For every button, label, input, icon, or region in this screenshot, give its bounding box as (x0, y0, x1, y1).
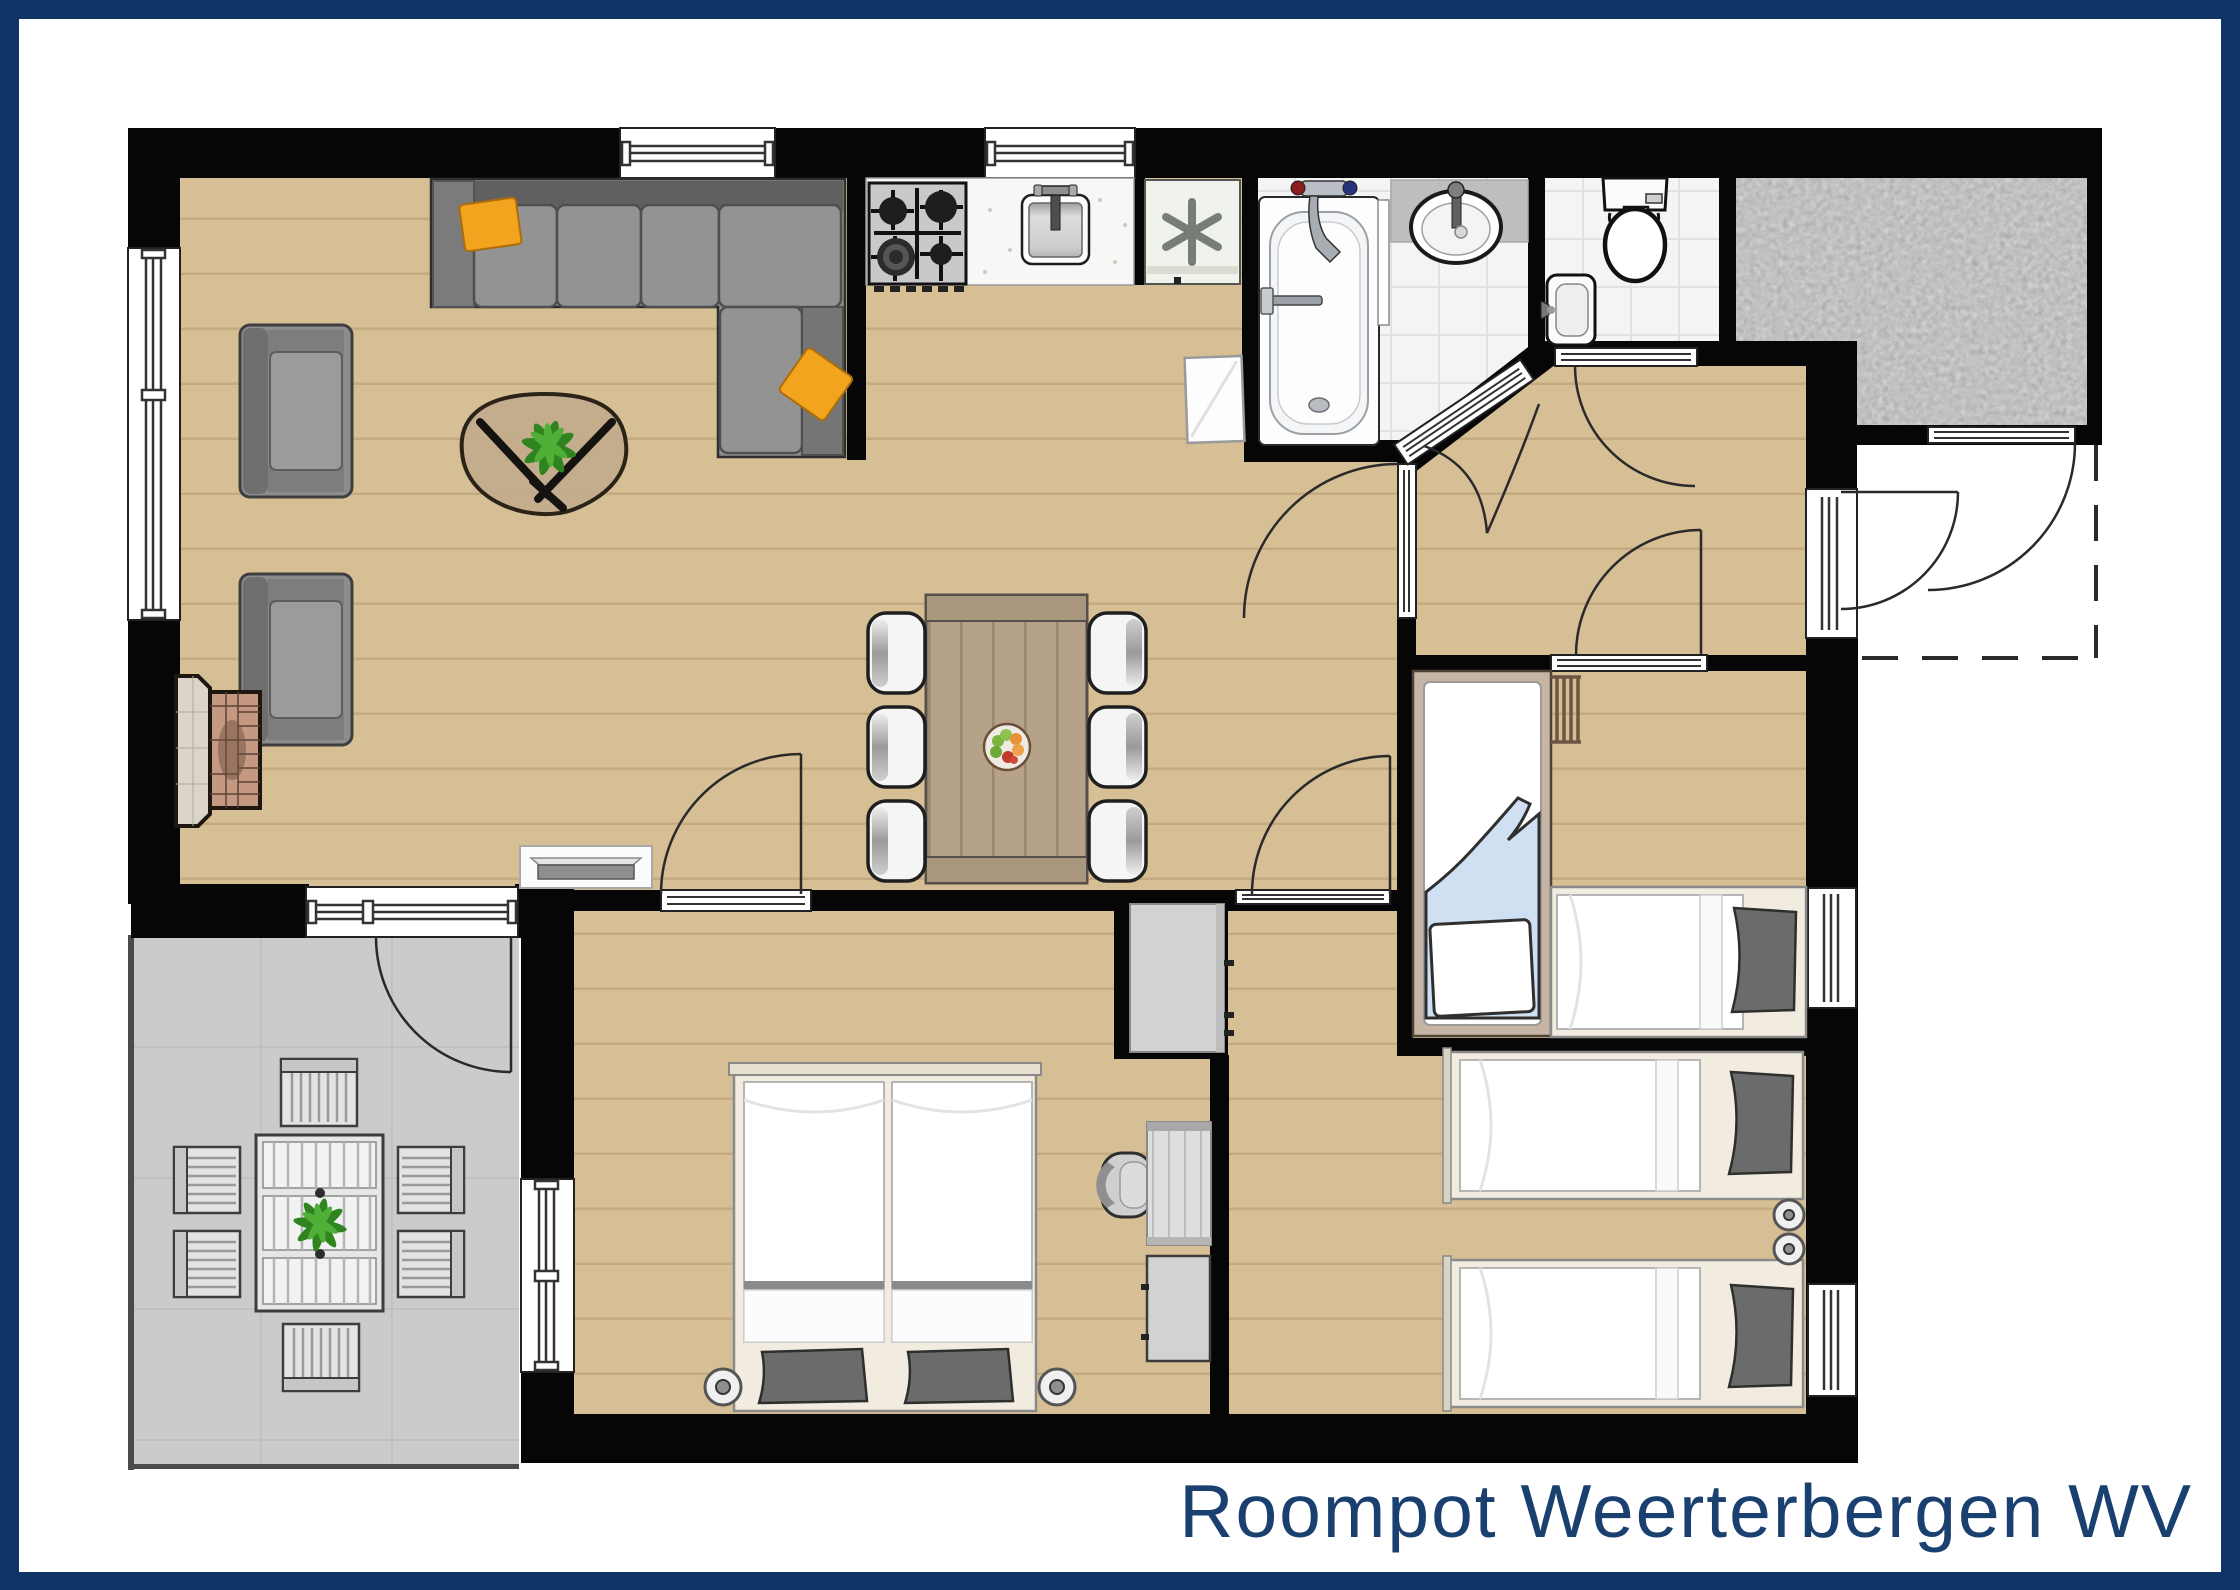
svg-text:Roompot Weerterbergen WV: Roompot Weerterbergen WV (1179, 1469, 2193, 1553)
